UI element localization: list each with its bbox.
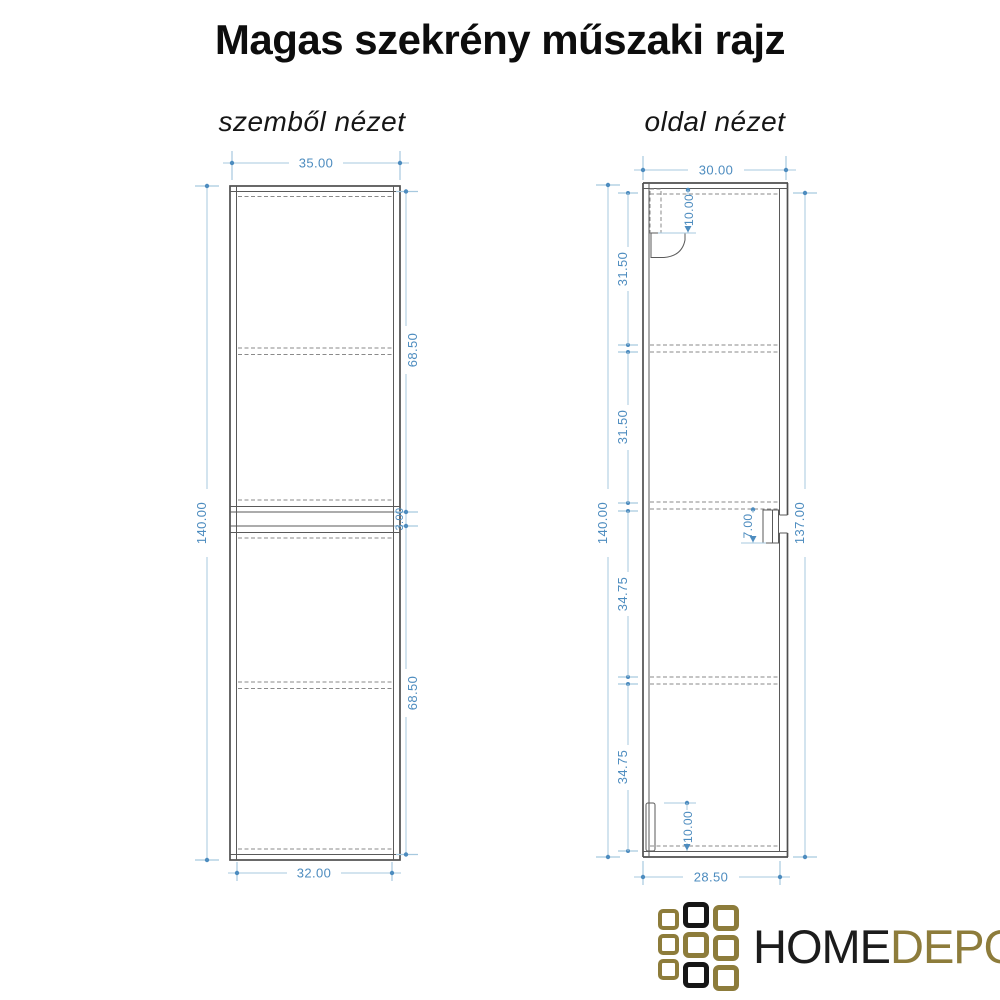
logo-square xyxy=(683,932,709,958)
homedepo-logo: HOMEDEPO xyxy=(658,902,1000,991)
logo-grid-column xyxy=(713,905,739,991)
dim-handle: 7.00 xyxy=(741,507,766,543)
dim-side-section-upper-mid: 31.50 xyxy=(615,410,630,445)
logo-grid-column xyxy=(658,909,679,980)
side-view-dimensions: 30.00 28.50 140.00 xyxy=(595,156,817,885)
logo-square xyxy=(713,965,739,991)
dim-side-front-height: 137.00 xyxy=(792,502,807,544)
logo-square xyxy=(713,935,739,961)
logo-square xyxy=(683,902,709,928)
logo-square xyxy=(658,959,679,980)
dim-side-section-top: 31.50 xyxy=(615,252,630,287)
dim-bottom-bracket: 10.00 xyxy=(664,801,696,851)
dim-side-section-bottom: 34.75 xyxy=(615,750,630,785)
side-section-chain: 31.50 31.50 34.75 34.75 xyxy=(615,191,638,853)
top-bracket xyxy=(651,233,685,258)
dim-side-section-lower-mid: 34.75 xyxy=(615,577,630,612)
bottom-bracket xyxy=(646,803,655,851)
dim-side-depth-bottom: 28.50 xyxy=(694,870,729,885)
front-view-drawing xyxy=(230,186,400,860)
logo-text-home: HOME xyxy=(753,920,890,973)
dim-front-height: 140.00 xyxy=(194,502,209,544)
logo-grid-icon xyxy=(658,902,739,991)
logo-square xyxy=(658,909,679,930)
logo-grid-column xyxy=(683,902,709,988)
dim-front-width-bottom: 32.00 xyxy=(297,866,332,881)
dim-front-lower-door: 68.50 xyxy=(405,676,420,711)
dim-side-handle-offset: 7.00 xyxy=(741,514,755,539)
page: Magas szekrény műszaki rajz szemből néze… xyxy=(0,0,1000,1000)
front-view-dimensions: 35.00 32.00 140.00 xyxy=(194,151,420,881)
dim-side-depth-top: 30.00 xyxy=(699,163,734,178)
door-handle xyxy=(763,510,779,543)
side-view-drawing xyxy=(643,183,788,857)
dim-front-upper-door: 68.50 xyxy=(405,333,420,368)
logo-square xyxy=(683,962,709,988)
dim-side-bracket-top: 10.00 xyxy=(682,194,696,226)
logo-text: HOMEDEPO xyxy=(753,919,1000,974)
logo-square xyxy=(658,934,679,955)
dim-top-bracket: 10.00 xyxy=(658,188,696,233)
dim-front-door-gap: 3.00 xyxy=(394,507,406,530)
dim-side-bracket-bottom: 10.00 xyxy=(681,811,695,843)
dim-front-width-top: 35.00 xyxy=(299,156,334,171)
logo-text-depo: DEPO xyxy=(890,920,1000,973)
dim-side-height: 140.00 xyxy=(595,502,610,544)
logo-square xyxy=(713,905,739,931)
top-bracket-hidden xyxy=(650,189,661,233)
technical-drawing: 35.00 32.00 140.00 xyxy=(0,0,1000,1000)
